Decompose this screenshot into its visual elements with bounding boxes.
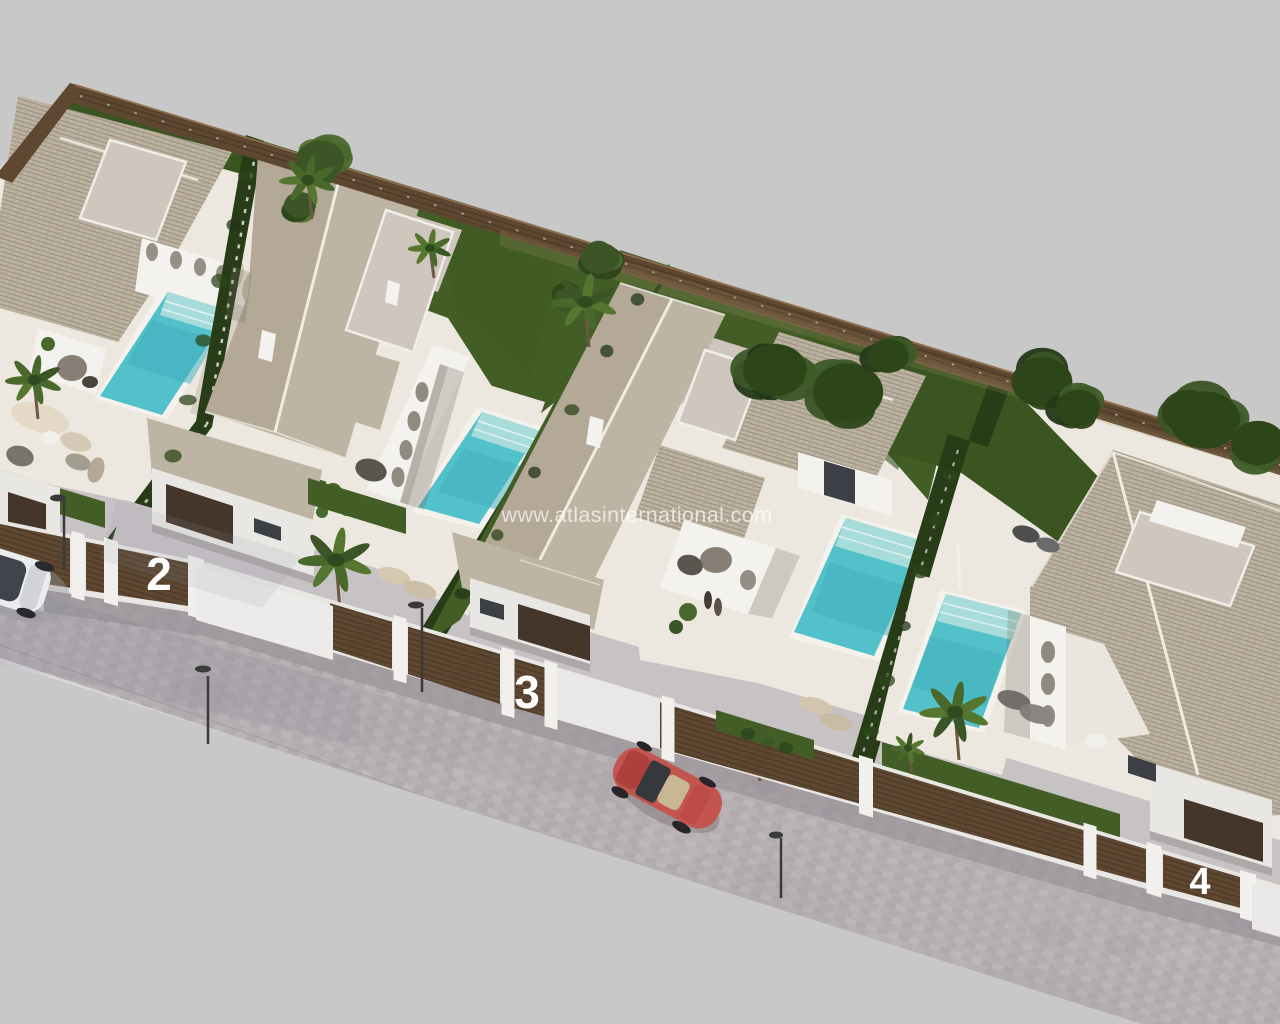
svg-text:2: 2	[146, 548, 172, 600]
svg-text:www.atlasinternational.com: www.atlasinternational.com	[501, 503, 773, 527]
svg-text:4: 4	[1189, 861, 1210, 903]
svg-text:3: 3	[514, 666, 540, 718]
